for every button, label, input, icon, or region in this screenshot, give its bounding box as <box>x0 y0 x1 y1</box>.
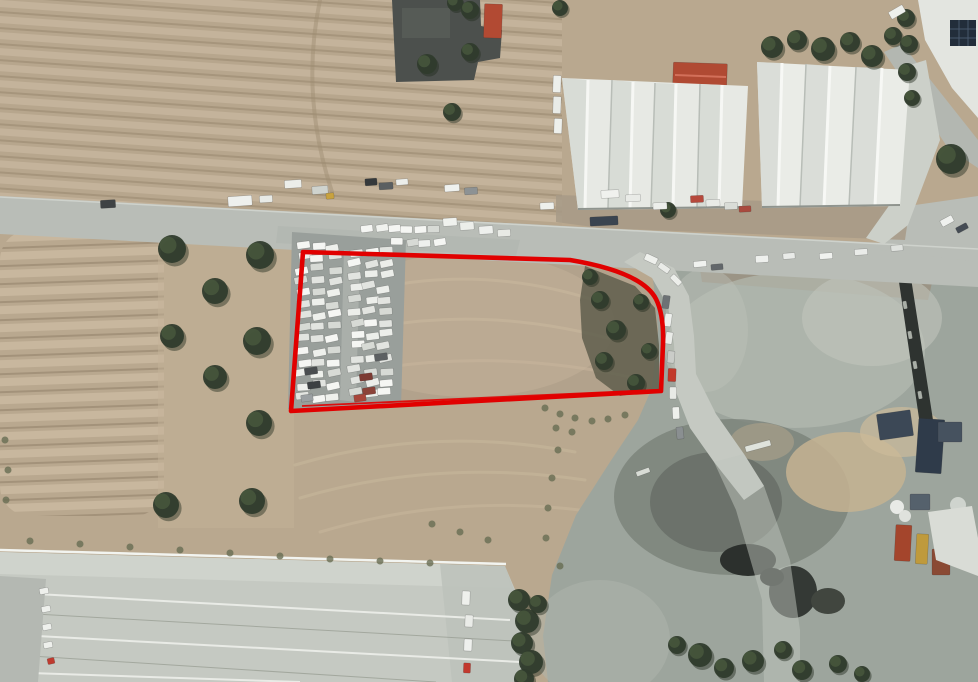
warehouse <box>0 550 528 682</box>
aerial-scene <box>0 0 978 682</box>
aerial-photo <box>0 0 978 682</box>
